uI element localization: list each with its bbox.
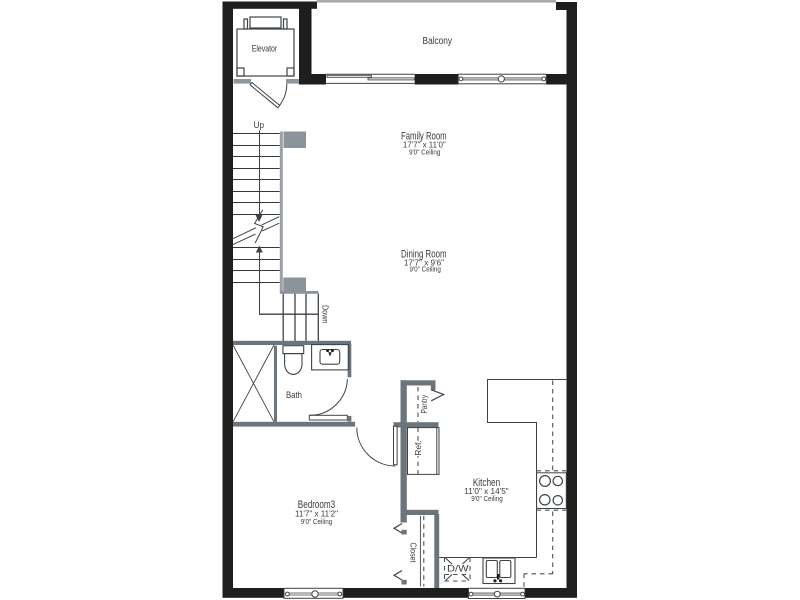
svg-text:9'0" Ceiling: 9'0" Ceiling: [301, 517, 333, 526]
svg-text:9'0" Ceiling: 9'0" Ceiling: [471, 494, 503, 503]
svg-text:9'0" Ceiling: 9'0" Ceiling: [409, 147, 441, 156]
svg-text:Ref.: Ref.: [413, 440, 423, 456]
svg-text:Up: Up: [254, 120, 265, 130]
svg-text:Closet: Closet: [409, 543, 418, 564]
svg-text:Elevator: Elevator: [252, 44, 278, 54]
svg-text:Balcony: Balcony: [423, 36, 453, 47]
svg-text:Pantry: Pantry: [420, 395, 429, 414]
svg-text:Down: Down: [320, 305, 330, 324]
svg-text:9'0" Ceiling: 9'0" Ceiling: [409, 265, 441, 274]
svg-text:Bath: Bath: [286, 390, 302, 400]
svg-text:D/W: D/W: [447, 564, 469, 575]
